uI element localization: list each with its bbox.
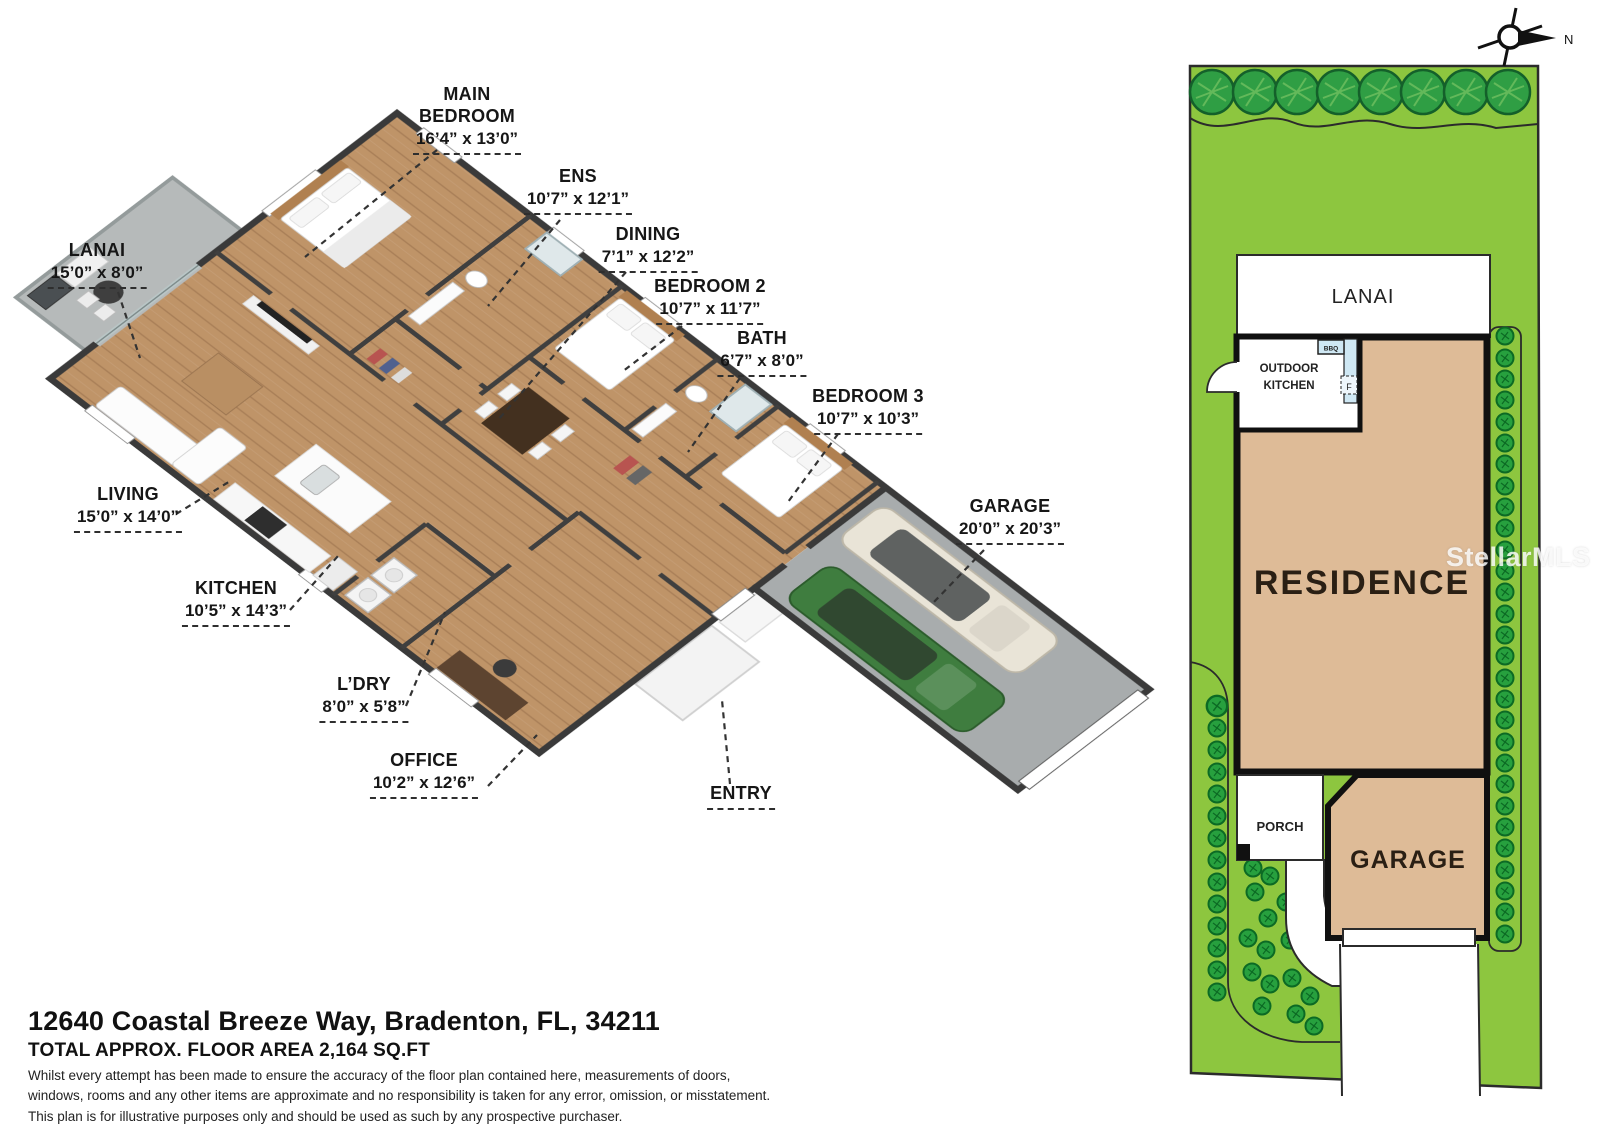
driveway: [1340, 944, 1480, 1096]
page: MAIN BEDROOM 16’4” x 13’0” ENS 10’7” x 1…: [0, 0, 1600, 1132]
fridge-label: F: [1346, 382, 1352, 392]
room-label-living: LIVING 15’0” x 14’0”: [74, 484, 182, 533]
north-label: N: [1564, 32, 1573, 47]
outdoor-kitchen-label-1: OUTDOOR: [1260, 363, 1319, 375]
site-garage-door: [1343, 929, 1475, 946]
footer: 12640 Coastal Breeze Way, Bradenton, FL,…: [28, 1006, 770, 1127]
site-garage-label: GARAGE: [1350, 846, 1466, 874]
north-compass-icon: N: [1478, 8, 1573, 66]
room-label-kitchen: KITCHEN 10’5” x 14’3”: [182, 578, 290, 627]
bbq-label: BBQ: [1324, 346, 1338, 353]
disclaimer-line-3: This plan is for illustrative purposes o…: [28, 1107, 770, 1127]
address: 12640 Coastal Breeze Way, Bradenton, FL,…: [28, 1006, 770, 1037]
room-label-dining: DINING 7’1” x 12’2”: [599, 224, 698, 273]
outdoor-kitchen-label-2: KITCHEN: [1263, 380, 1314, 392]
site-lanai-label: LANAI: [1332, 286, 1395, 308]
site-plan: LANAI BBQ F OUTDOOR KITCHEN RESIDENCE PO…: [0, 0, 1600, 1132]
room-label-main-bedroom: MAIN BEDROOM 16’4” x 13’0”: [406, 84, 528, 155]
room-label-lanai: LANAI 15’0” x 8’0”: [48, 240, 147, 289]
watermark: StellarMLS: [1446, 542, 1591, 573]
room-label-office: OFFICE 10’2” x 12’6”: [370, 750, 478, 799]
site-residence-label: RESIDENCE: [1254, 564, 1470, 602]
porch-post: [1237, 844, 1250, 860]
site-porch-label: PORCH: [1257, 819, 1304, 834]
room-label-ens: ENS 10’7” x 12’1”: [524, 166, 632, 215]
floor-area: TOTAL APPROX. FLOOR AREA 2,164 SQ.FT: [28, 1040, 770, 1062]
room-label-bedroom3: BEDROOM 3 10’7” x 10’3”: [812, 386, 924, 435]
disclaimer-line-1: Whilst every attempt has been made to en…: [28, 1066, 770, 1086]
room-label-bedroom2: BEDROOM 2 10’7” x 11’7”: [654, 276, 766, 325]
disclaimer: Whilst every attempt has been made to en…: [28, 1066, 770, 1127]
room-label-entry: ENTRY: [707, 783, 775, 810]
room-label-ldry: L’DRY 8’0” x 5’8”: [319, 674, 408, 723]
room-label-garage: GARAGE 20’0” x 20’3”: [956, 496, 1064, 545]
disclaimer-line-2: windows, rooms and any other items are a…: [28, 1086, 770, 1106]
right-bush-hedge: [1497, 328, 1514, 943]
room-label-bath: BATH 6’7” x 8’0”: [717, 328, 806, 377]
